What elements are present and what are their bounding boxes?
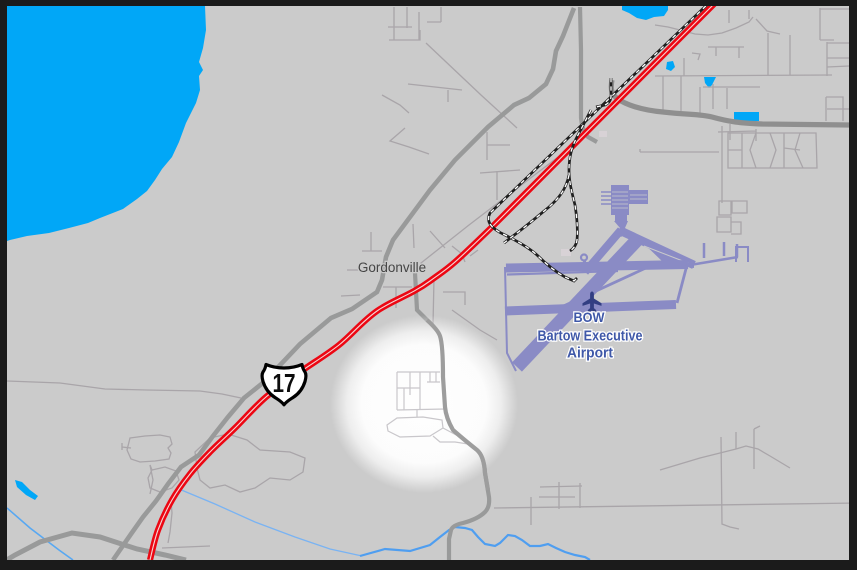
svg-text:BOW: BOW [574, 309, 606, 325]
svg-text:17: 17 [273, 368, 296, 398]
svg-text:Bartow Executive: Bartow Executive [538, 329, 643, 345]
svg-text:Airport: Airport [567, 346, 613, 362]
svg-text:Gordonville: Gordonville [358, 260, 426, 275]
